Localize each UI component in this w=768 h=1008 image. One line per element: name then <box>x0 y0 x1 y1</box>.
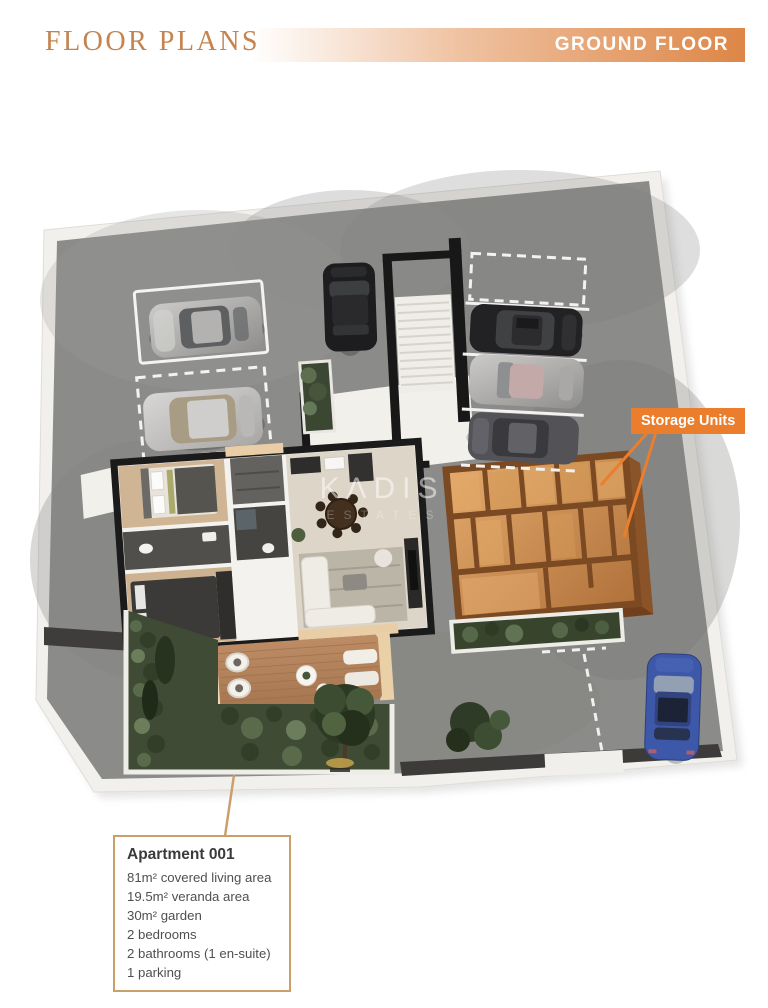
apartment-callout: Apartment 001 81m² covered living area 1… <box>113 835 291 992</box>
car-silver-sedan <box>148 295 264 359</box>
floor-plan-page: FLOOR PLANS GROUND FLOOR <box>0 0 768 1008</box>
storage-units <box>446 453 654 633</box>
callout-line: 2 bathrooms (1 en-suite) <box>127 944 277 963</box>
car-blue <box>644 653 702 761</box>
car-dark-gray <box>467 411 579 465</box>
bed-master <box>140 464 217 519</box>
callout-line: 81m² covered living area <box>127 868 277 887</box>
developer-logo-mark <box>326 758 354 772</box>
car-silver-coupe <box>468 353 584 409</box>
callout-line: 2 bedrooms <box>127 925 277 944</box>
car-black-sedan <box>469 303 583 357</box>
callout-line: 19.5m² veranda area <box>127 887 277 906</box>
callout-line: 1 parking <box>127 963 277 982</box>
conifer-tree <box>155 636 175 684</box>
callout-line: 30m² garden <box>127 906 277 925</box>
car-silver-suv <box>142 386 264 452</box>
conifer-tree <box>142 680 158 720</box>
stair-planter <box>300 361 335 433</box>
storage-units-label: Storage Units <box>631 408 745 434</box>
car-black-top <box>322 262 377 352</box>
apartment-callout-title: Apartment 001 <box>127 846 277 864</box>
